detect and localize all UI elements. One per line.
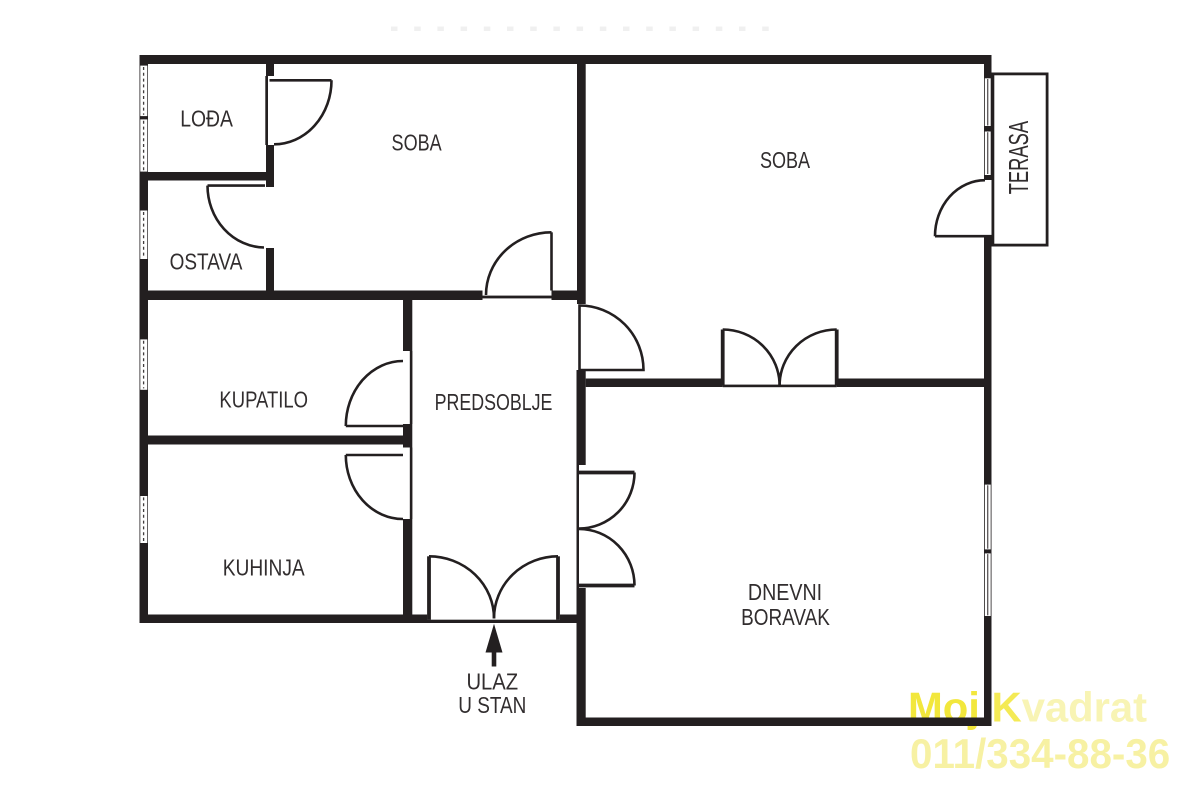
svg-text:ULAZ: ULAZ bbox=[466, 668, 518, 695]
svg-text:SOBA: SOBA bbox=[760, 148, 810, 174]
svg-text:U STAN: U STAN bbox=[458, 693, 526, 718]
svg-text:PREDSOBLJE: PREDSOBLJE bbox=[435, 390, 553, 416]
svg-text:TERASA: TERASA bbox=[1005, 121, 1036, 195]
svg-text:KUHINJA: KUHINJA bbox=[223, 556, 306, 581]
svg-text:BORAVAK: BORAVAK bbox=[741, 605, 830, 630]
svg-text:KUPATILO: KUPATILO bbox=[219, 388, 308, 413]
svg-text:SOBA: SOBA bbox=[392, 130, 442, 156]
svg-text:OSTAVA: OSTAVA bbox=[170, 250, 244, 275]
svg-text:DNEVNI: DNEVNI bbox=[748, 579, 822, 605]
svg-text:011/334-88-36: 011/334-88-36 bbox=[910, 730, 1170, 777]
svg-text:LOĐA: LOĐA bbox=[180, 106, 233, 132]
